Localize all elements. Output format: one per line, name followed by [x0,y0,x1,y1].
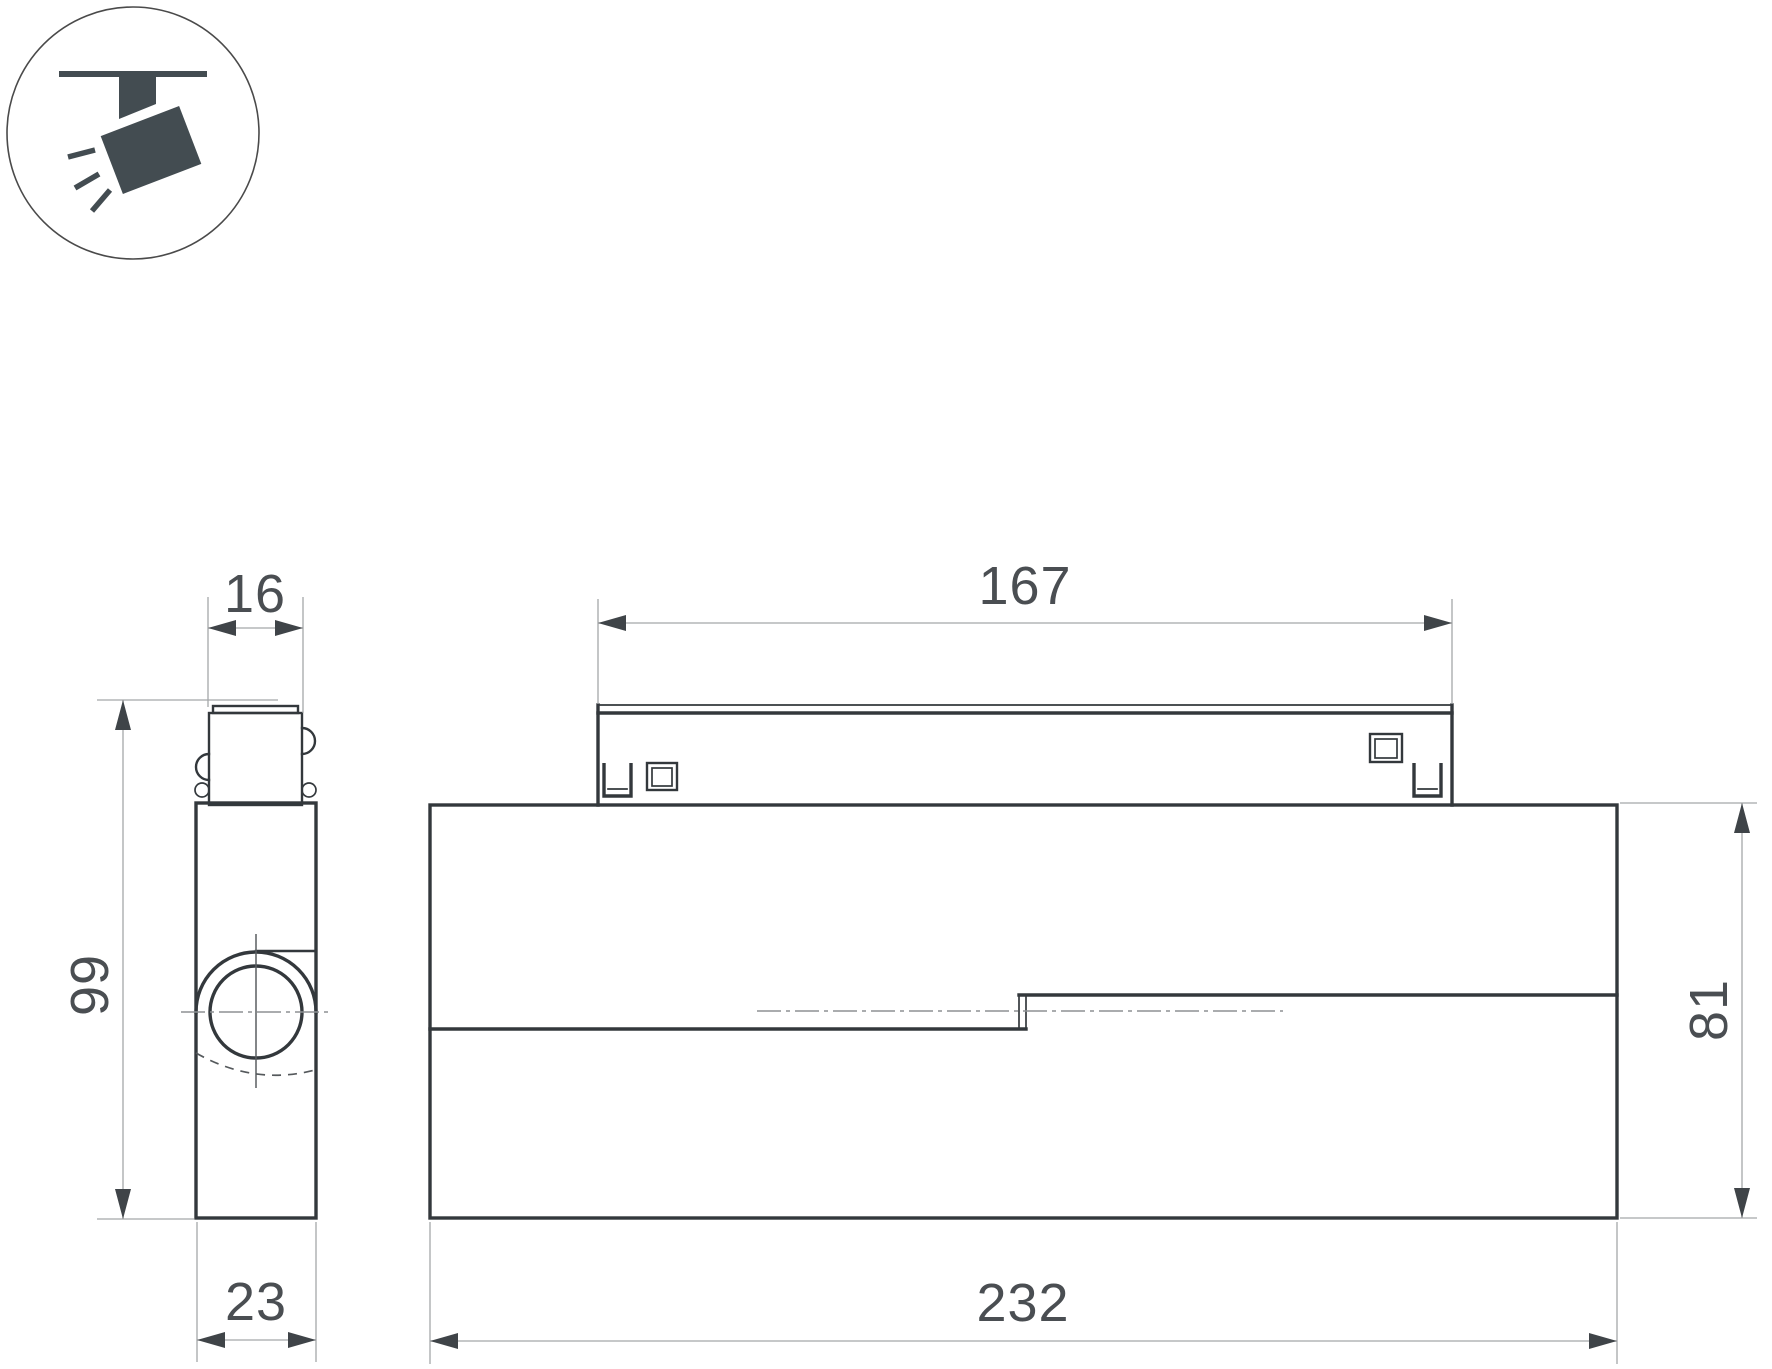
track-adapter-side [209,713,302,805]
adapter-bump-left [196,754,209,780]
arrowhead-bottom [115,1189,131,1219]
clip-window-right-inner [1375,739,1397,758]
dimension-drawing: 16 99 23 [0,0,1772,1369]
front-view [430,705,1617,1218]
clip-window-left-inner [652,768,672,786]
arrowhead-top [115,700,131,730]
arrowhead-right [1424,615,1452,631]
dim-label-81: 81 [1679,979,1739,1041]
clip-u-left [604,763,631,796]
track-light-icon [7,7,259,259]
arrowhead-left [430,1333,458,1349]
arrowhead-bottom [1734,1188,1750,1218]
adapter-ring-left [195,783,209,797]
dimension-232: 232 [430,1222,1617,1364]
dim-label-16: 16 [224,564,286,624]
dimension-167: 167 [598,556,1452,704]
dimension-99: 99 [60,700,278,1219]
dimension-23: 23 [197,1222,316,1362]
dim-label-232: 232 [976,1273,1069,1333]
arrowhead-right [288,1332,316,1348]
arrowhead-right [1589,1333,1617,1349]
arrowhead-left [197,1332,225,1348]
side-view [181,706,331,1218]
adapter-ring-right [302,783,316,797]
dimension-16: 16 [208,564,303,713]
dim-label-23: 23 [225,1272,287,1332]
adapter-bump-right [302,728,315,754]
track-bar [59,71,207,77]
dim-label-167: 167 [978,556,1071,616]
clip-u-right [1414,763,1441,796]
dimension-81: 81 [1620,803,1757,1218]
dim-label-99: 99 [60,954,120,1016]
arrowhead-top [1734,803,1750,833]
arrowhead-left [598,615,626,631]
